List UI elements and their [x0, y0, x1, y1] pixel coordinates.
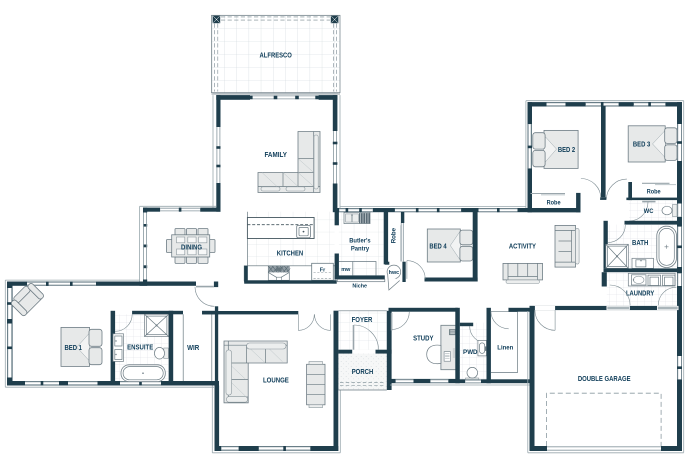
- svg-text:Fr: Fr: [320, 268, 326, 274]
- svg-text:ACTIVITY: ACTIVITY: [509, 242, 536, 251]
- svg-text:BED 2: BED 2: [558, 145, 575, 154]
- svg-text:LOUNGE: LOUNGE: [263, 375, 289, 384]
- svg-text:Robe: Robe: [647, 189, 661, 196]
- svg-text:KITCHEN: KITCHEN: [277, 248, 303, 257]
- svg-text:PORCH: PORCH: [352, 367, 374, 376]
- svg-text:ALFRESCO: ALFRESCO: [260, 50, 292, 59]
- svg-text:WC: WC: [644, 208, 654, 215]
- svg-text:ENSUITE: ENSUITE: [127, 343, 153, 352]
- svg-text:mw: mw: [341, 267, 351, 273]
- svg-text:BED 4: BED 4: [429, 241, 447, 250]
- svg-text:WIR: WIR: [187, 343, 200, 352]
- svg-text:Robe: Robe: [390, 227, 397, 243]
- svg-text:LAUNDRY: LAUNDRY: [626, 288, 654, 297]
- svg-text:PWD: PWD: [463, 349, 478, 356]
- svg-text:Pantry: Pantry: [351, 246, 370, 253]
- svg-text:Niche: Niche: [352, 284, 367, 290]
- svg-text:FOYER: FOYER: [352, 315, 373, 324]
- svg-text:Robe: Robe: [547, 199, 561, 206]
- svg-text:STUDY: STUDY: [413, 333, 433, 342]
- svg-text:FAMILY: FAMILY: [264, 150, 287, 159]
- svg-text:BATH: BATH: [632, 238, 648, 247]
- svg-text:hwc: hwc: [389, 270, 399, 276]
- svg-text:Linen: Linen: [497, 345, 513, 352]
- svg-text:DOUBLE GARAGE: DOUBLE GARAGE: [578, 374, 631, 383]
- svg-text:DINING: DINING: [181, 243, 202, 252]
- svg-text:Butler's: Butler's: [349, 238, 371, 245]
- svg-text:BED 3: BED 3: [633, 140, 650, 149]
- svg-text:BED 1: BED 1: [64, 343, 82, 352]
